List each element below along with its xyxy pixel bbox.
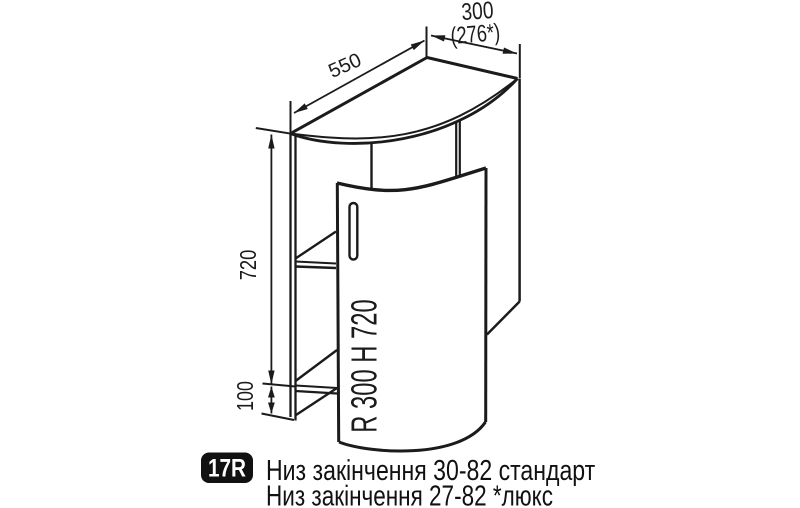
svg-text:R 300 H 720: R 300 H 720 [345, 299, 385, 432]
svg-text:Низ закінчення 27-82 *люкс: Низ закінчення 27-82 *люкс [266, 481, 553, 508]
svg-text:720: 720 [236, 250, 262, 281]
svg-text:100: 100 [233, 381, 259, 411]
svg-text:(276*): (276*) [449, 19, 501, 50]
svg-text:17R: 17R [208, 454, 246, 482]
